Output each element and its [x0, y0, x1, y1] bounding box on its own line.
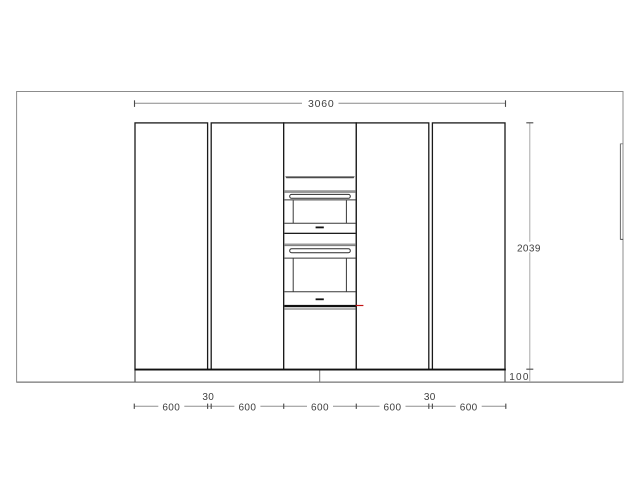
svg-text:600: 600: [460, 402, 478, 413]
svg-text:600: 600: [384, 402, 402, 413]
svg-text:30: 30: [424, 392, 436, 403]
svg-text:30: 30: [202, 392, 214, 403]
svg-text:100: 100: [509, 372, 529, 383]
svg-text:2039: 2039: [517, 244, 541, 255]
svg-text:600: 600: [162, 402, 180, 413]
svg-text:600: 600: [238, 402, 256, 413]
svg-text:600: 600: [311, 402, 329, 413]
svg-text:3060: 3060: [308, 98, 335, 110]
